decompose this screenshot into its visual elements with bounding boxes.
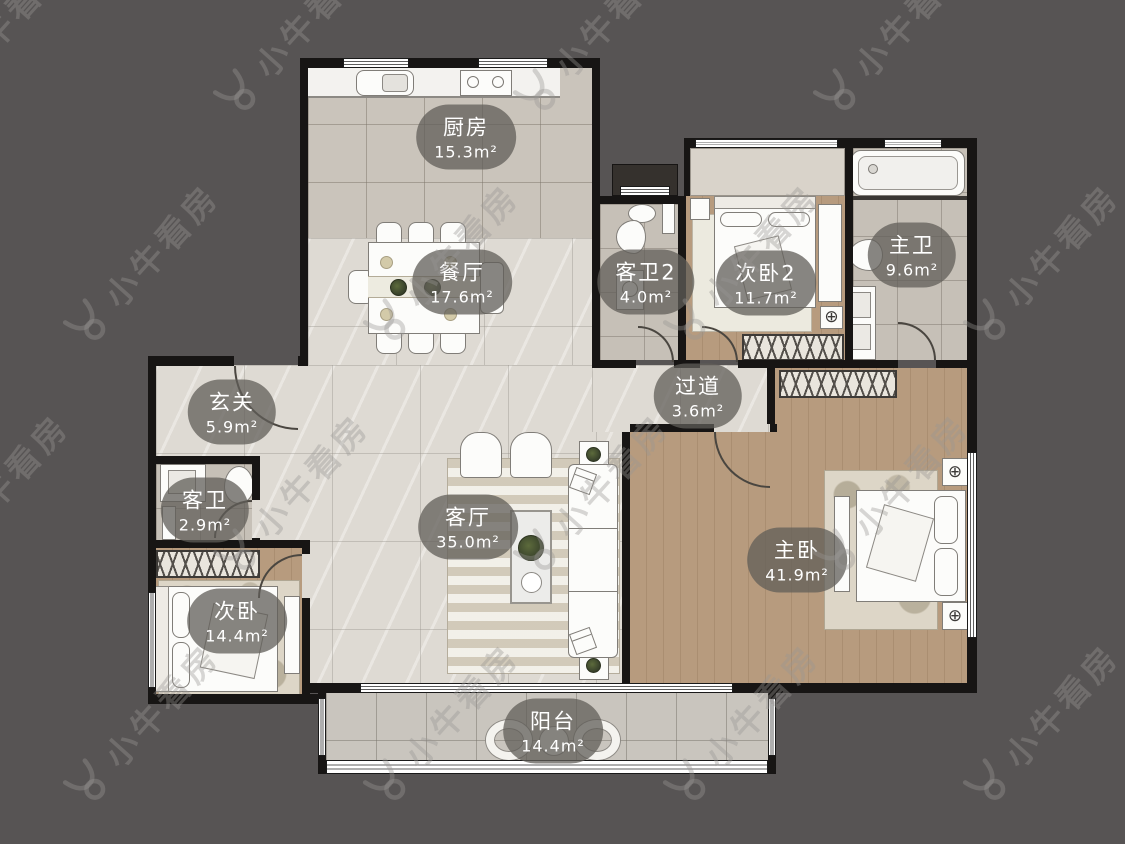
room-name: 玄关 — [206, 387, 258, 417]
bedroom-2-headboard — [714, 196, 816, 209]
armchair — [460, 432, 502, 478]
watermark-text: 小牛看房 — [92, 172, 229, 317]
room-area: 9.6m² — [886, 261, 938, 280]
kitchen-sink-basin — [382, 74, 408, 92]
wall — [936, 360, 967, 368]
bull-logo-icon — [958, 753, 1020, 815]
vanity-sink — [851, 324, 871, 350]
master-pillow — [934, 548, 958, 596]
room-label-kitchen: 厨房 15.3m² — [416, 105, 516, 170]
bedroom-headboard — [154, 586, 169, 692]
room-area: 2.9m² — [179, 516, 231, 535]
bedroom-bench — [284, 596, 300, 674]
watermark: 小牛看房 — [956, 172, 1125, 356]
table-plant — [390, 279, 407, 296]
room-area: 14.4m² — [205, 627, 269, 646]
wall — [738, 360, 845, 368]
balcony-side-window — [768, 698, 776, 756]
room-name: 主卧 — [765, 535, 829, 565]
wall — [148, 456, 258, 464]
wall — [622, 432, 630, 683]
master-wardrobe — [779, 370, 897, 398]
room-area: 35.0m² — [436, 533, 500, 552]
wall — [592, 360, 636, 368]
watermark-text: 小牛看房 — [992, 632, 1125, 777]
stove-burner — [492, 76, 504, 88]
wall — [302, 598, 310, 696]
bedroom-2-wardrobe — [742, 334, 844, 361]
watermark: 小牛看房 — [806, 0, 979, 126]
bedroom-2-pillow — [720, 212, 762, 227]
watermark: 小牛看房 — [956, 632, 1125, 816]
room-area: 4.0m² — [615, 288, 676, 307]
bedroom-2-bay-sill — [690, 148, 845, 196]
room-label-bedroom-2: 次卧2 11.7m² — [716, 251, 816, 316]
watermark: 小牛看房 — [0, 402, 79, 586]
room-name: 客卫2 — [615, 257, 676, 287]
sofa — [568, 464, 618, 658]
room-area: 3.6m² — [672, 402, 724, 421]
kitchen-counter — [308, 66, 560, 98]
room-name: 客卫 — [179, 485, 231, 515]
wall — [252, 456, 260, 500]
wall — [298, 356, 308, 366]
tub-partition — [851, 196, 967, 200]
room-label-guest-bath-2: 客卫2 4.0m² — [597, 250, 694, 315]
wall — [308, 683, 360, 693]
wall — [300, 58, 308, 365]
wall — [775, 683, 977, 693]
master-pillow — [934, 496, 958, 544]
bedroom-2-window — [695, 139, 838, 148]
wall — [767, 368, 775, 424]
room-name: 次卧 — [205, 596, 269, 626]
nightstand-lamp: ⊕ — [942, 458, 968, 486]
room-name: 阳台 — [521, 706, 585, 736]
room-name: 厨房 — [434, 112, 498, 142]
room-label-dining: 餐厅 17.6m² — [412, 250, 512, 315]
bedroom-2-nightstand — [690, 198, 710, 220]
room-area: 41.9m² — [765, 566, 829, 585]
room-area: 14.4m² — [521, 737, 585, 756]
bull-logo-icon — [808, 63, 870, 125]
side-table-plant — [586, 658, 601, 673]
floor-plan-image: ⊕ ⊕ ⊕ — [0, 0, 1125, 844]
kitchen-window — [343, 58, 409, 68]
coffee-table-tray — [521, 572, 542, 593]
room-area: 5.9m² — [206, 418, 258, 437]
armchair — [510, 432, 552, 478]
dining-chair — [408, 332, 434, 354]
bull-logo-icon — [58, 753, 120, 815]
coffee-table-plant — [518, 535, 544, 561]
room-name: 过道 — [672, 371, 724, 401]
wall — [845, 146, 853, 368]
watermark-text: 小牛看房 — [0, 402, 79, 547]
room-area: 15.3m² — [434, 143, 498, 162]
room-name: 主卫 — [886, 230, 938, 260]
watermark-text: 小牛看房 — [0, 0, 79, 87]
plate — [380, 256, 393, 269]
wall — [684, 148, 690, 196]
wall — [148, 694, 322, 704]
balcony-side-window — [318, 698, 326, 756]
dining-chair — [408, 222, 434, 244]
watermark: 小牛看房 — [0, 0, 79, 126]
room-label-bedroom: 次卧 14.4m² — [187, 589, 287, 654]
bedroom-wardrobe — [156, 550, 260, 578]
dining-chair — [376, 222, 402, 244]
kitchen-window — [478, 58, 548, 68]
master-bath-window — [884, 139, 942, 148]
side-table-plant — [586, 447, 601, 462]
bull-logo-icon — [58, 293, 120, 355]
room-label-guest-bath: 客卫 2.9m² — [161, 478, 249, 543]
dining-chair — [376, 332, 402, 354]
stove-burner — [467, 76, 479, 88]
wall — [148, 356, 234, 366]
room-label-living: 客厅 35.0m² — [418, 495, 518, 560]
room-label-master-bedroom: 主卧 41.9m² — [747, 528, 847, 593]
wall — [592, 58, 600, 364]
room-label-master-bath: 主卫 9.6m² — [868, 223, 956, 288]
bathtub-faucet — [868, 164, 878, 174]
room-name: 次卧2 — [734, 258, 798, 288]
dining-chair — [440, 222, 466, 244]
wall — [600, 196, 686, 204]
sliding-door — [360, 683, 733, 693]
watermark-text: 小牛看房 — [992, 172, 1125, 317]
bull-logo-icon — [208, 63, 270, 125]
bedroom-2-closet — [818, 204, 842, 302]
room-label-balcony: 阳台 14.4m² — [503, 699, 603, 764]
plate — [380, 308, 393, 321]
room-label-corridor: 过道 3.6m² — [654, 364, 742, 429]
vanity-sink — [851, 292, 871, 318]
wall — [148, 540, 308, 548]
room-area: 17.6m² — [430, 288, 494, 307]
bedroom-2-pillow — [768, 212, 810, 227]
watermark: 小牛看房 — [56, 172, 229, 356]
room-area: 11.7m² — [734, 289, 798, 308]
shaft-vent — [620, 186, 670, 196]
dining-chair — [440, 332, 466, 354]
bedroom-pillow — [172, 642, 190, 688]
master-bedroom-window — [967, 452, 977, 638]
wall — [770, 424, 777, 432]
bedroom-window — [148, 592, 156, 688]
room-name: 餐厅 — [430, 257, 494, 287]
dining-chair — [348, 270, 370, 304]
nightstand-lamp: ⊕ — [942, 602, 968, 630]
wall — [845, 360, 898, 368]
room-name: 客厅 — [436, 502, 500, 532]
ac-unit: ⊕ — [820, 306, 843, 329]
room-label-entry: 玄关 5.9m² — [188, 380, 276, 445]
wall — [302, 540, 310, 554]
watermark-text: 小牛看房 — [842, 0, 979, 87]
